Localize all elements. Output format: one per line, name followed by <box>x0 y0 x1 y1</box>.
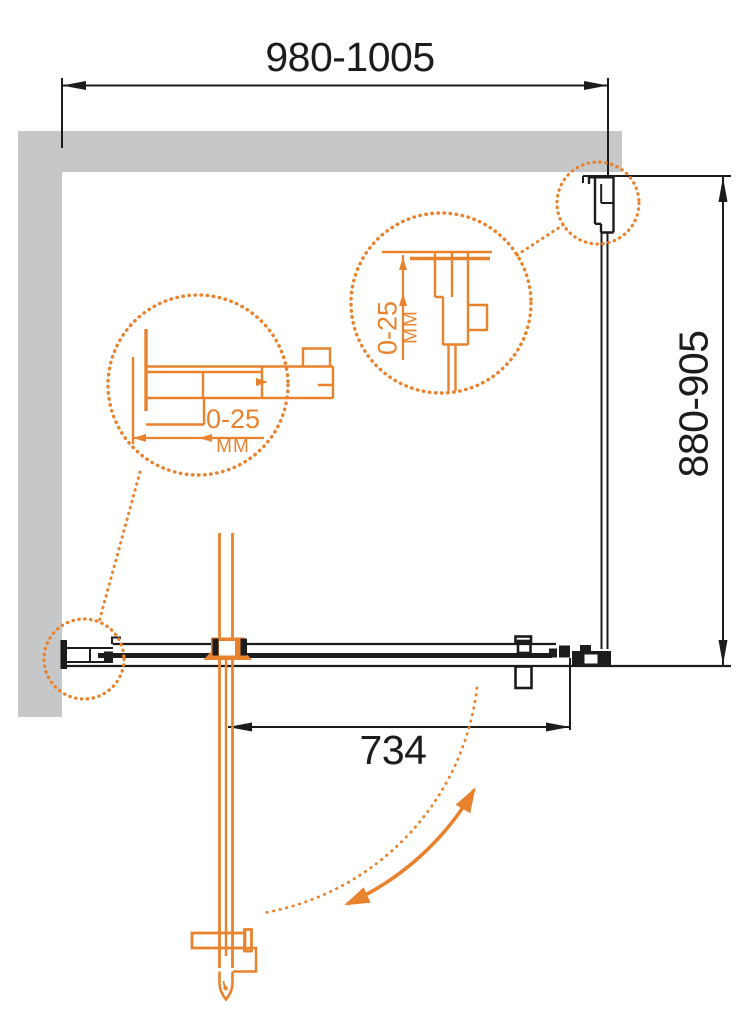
side-panel-right <box>589 177 614 650</box>
door-opening-dimension <box>228 658 570 732</box>
installation-drawing <box>0 0 752 1024</box>
swing-direction-arrow <box>347 790 474 904</box>
callout-leader-left <box>99 472 140 622</box>
top-width-dim-label: 980-1005 <box>230 37 470 78</box>
callout-middle-range-label: 0-25 <box>375 301 402 355</box>
callout-left-range-label: 0-25 <box>200 406 266 433</box>
door-bottom-seal <box>220 972 233 1000</box>
side-glass-lines <box>602 233 608 650</box>
wall-corner <box>18 131 622 717</box>
door-opening-dim-label: 734 <box>343 730 443 771</box>
knob-handle <box>513 632 535 689</box>
swing-path-dotted <box>263 688 477 913</box>
side-depth-dim-label: 880-905 <box>674 331 715 478</box>
fixed-panel-assembly <box>61 632 732 689</box>
callout-leader-middle <box>517 225 563 255</box>
door-handle <box>192 930 256 972</box>
door-hinge <box>204 638 253 661</box>
diagram-canvas: 980-1005 880-905 734 0-25 ММ 0-25 ММ <box>0 0 752 1024</box>
door-swing <box>263 688 477 913</box>
wall-profile-left <box>61 640 114 669</box>
callout-left-unit-label: ММ <box>205 437 261 456</box>
callout-middle-unit-label: ММ <box>402 310 421 344</box>
door-panel <box>192 533 256 1000</box>
